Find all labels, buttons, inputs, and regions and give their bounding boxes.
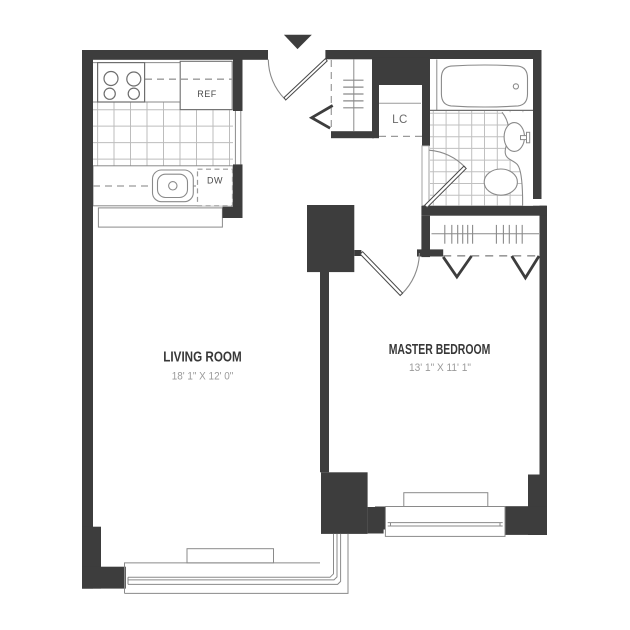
svg-text:LIVING ROOM: LIVING ROOM [163,349,241,365]
svg-text:18' 1" X 12' 0": 18' 1" X 12' 0" [172,371,234,383]
svg-text:13' 1" X 11' 1": 13' 1" X 11' 1" [409,362,471,374]
svg-text:REF: REF [197,89,217,99]
svg-text:LC: LC [392,114,408,126]
svg-text:DW: DW [207,176,223,186]
svg-text:MASTER BEDROOM: MASTER BEDROOM [389,342,491,358]
